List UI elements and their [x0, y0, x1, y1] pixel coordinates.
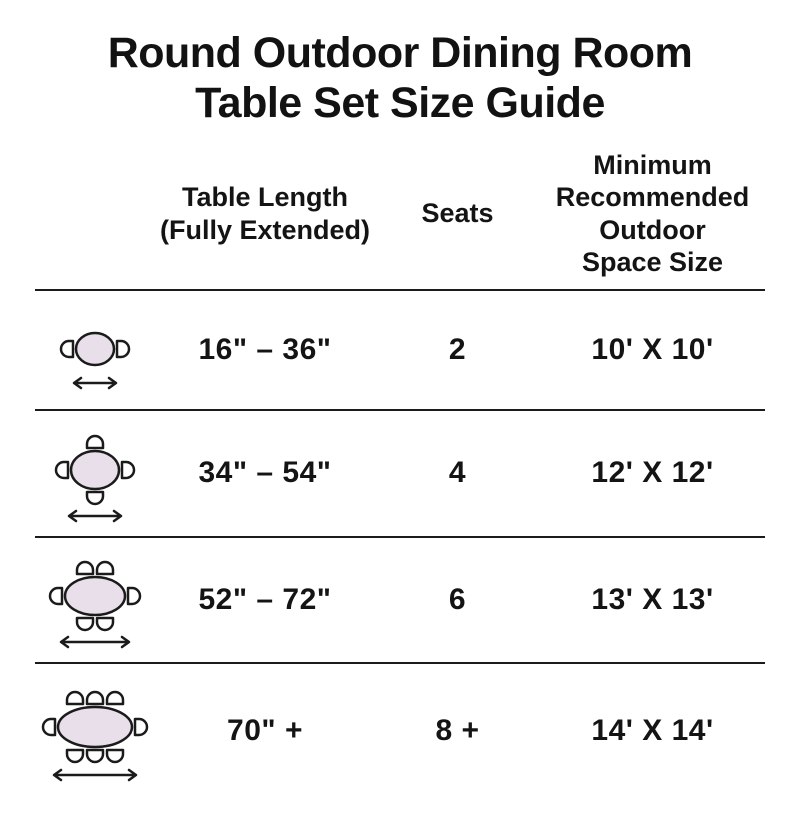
header-space-size: Minimum Recommended Outdoor Space Size — [540, 149, 765, 279]
table-4-seats-icon — [35, 418, 155, 528]
space-size-value: 12' X 12' — [540, 456, 765, 490]
table-row: 70" + 8 + 14' X 14' — [35, 664, 765, 798]
size-guide-table: Table Length (Fully Extended) Seats Mini… — [35, 139, 765, 798]
table-row: 52" – 72" 6 13' X 13' — [35, 538, 765, 662]
table-row: 16" – 36" 2 10' X 10' — [35, 291, 765, 409]
header-table-length: Table Length (Fully Extended) — [155, 181, 375, 246]
seats-value: 8 + — [375, 714, 540, 748]
table-length-value: 52" – 72" — [155, 583, 375, 617]
space-size-value: 13' X 13' — [540, 583, 765, 617]
table-6-seats-icon — [35, 545, 155, 655]
space-size-value: 14' X 14' — [540, 714, 765, 748]
table-length-value: 70" + — [155, 714, 375, 748]
seats-value: 6 — [375, 583, 540, 617]
header-seats: Seats — [375, 197, 540, 229]
table-length-value: 16" – 36" — [155, 333, 375, 367]
table-length-value: 34" – 54" — [155, 456, 375, 490]
seats-value: 4 — [375, 456, 540, 490]
seats-value: 2 — [375, 333, 540, 367]
table-row: 34" – 54" 4 12' X 12' — [35, 411, 765, 536]
space-size-value: 10' X 10' — [540, 333, 765, 367]
table-2-seats-icon — [35, 305, 155, 395]
table-8-seats-icon — [35, 675, 155, 787]
header-row: Table Length (Fully Extended) Seats Mini… — [35, 139, 765, 289]
page-title: Round Outdoor Dining Room Table Set Size… — [0, 28, 800, 129]
